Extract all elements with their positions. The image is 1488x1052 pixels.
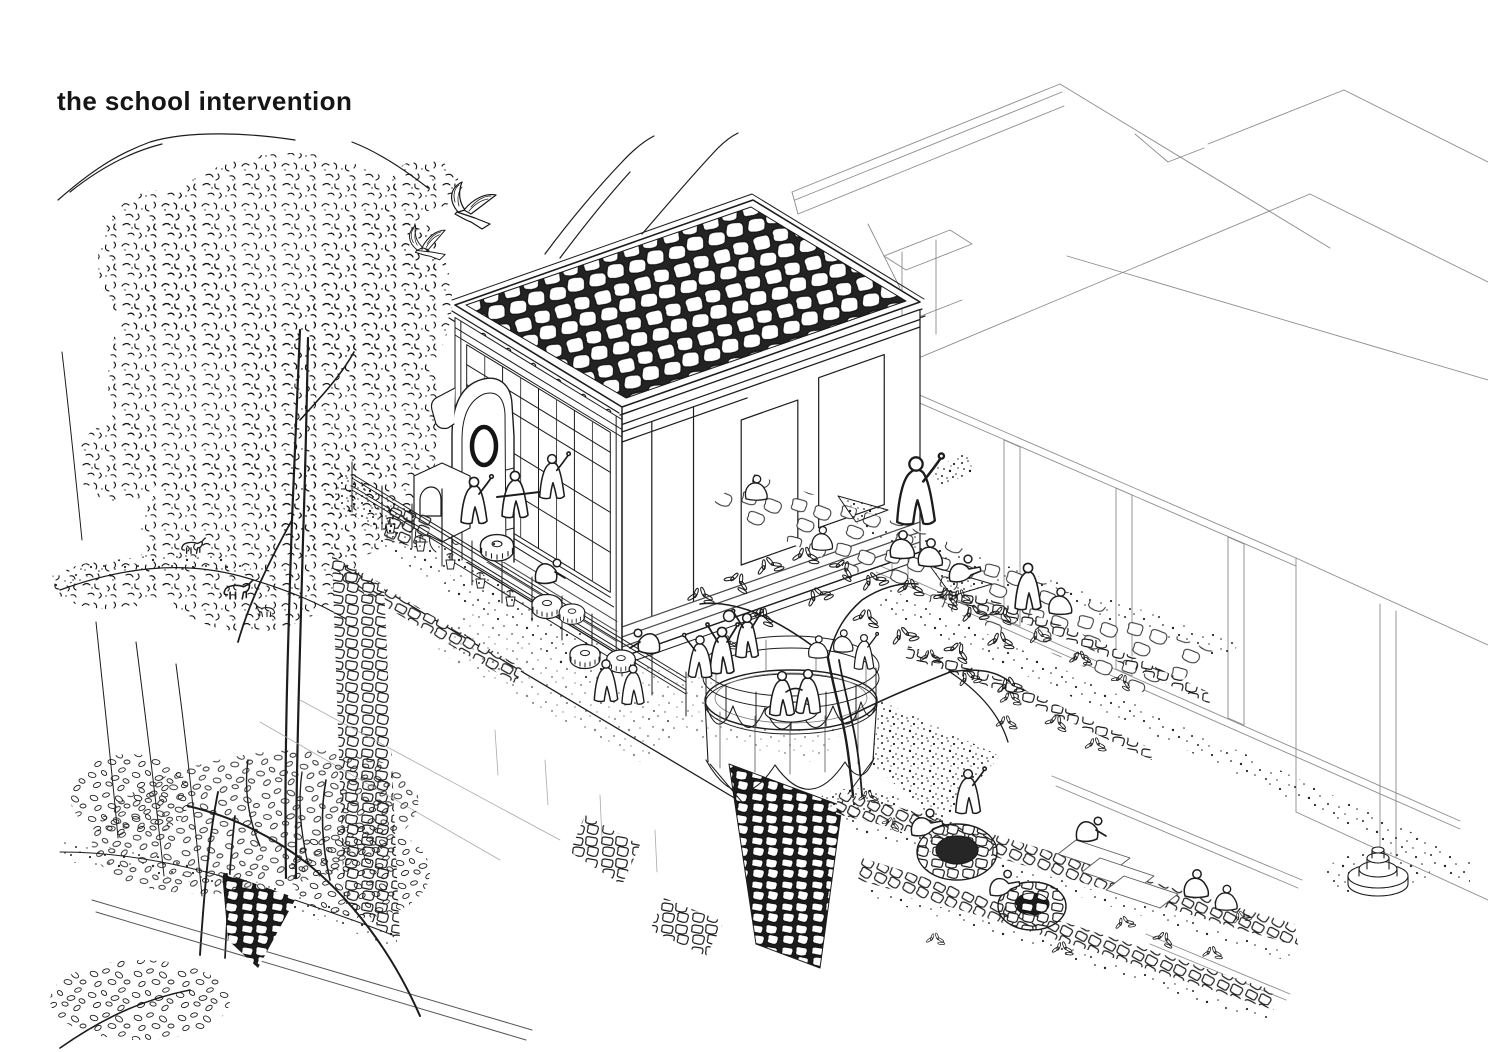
bird-icon	[452, 182, 496, 229]
person-waving	[683, 633, 712, 677]
terrace-wall-upper	[836, 792, 1298, 946]
large-tree-foliage	[54, 153, 459, 632]
child-in-tree	[854, 633, 878, 670]
person-bending	[1076, 817, 1106, 841]
illustration-svg	[0, 0, 1488, 1052]
child-in-tree	[809, 636, 828, 658]
ball	[724, 611, 735, 622]
person-sitting	[1184, 870, 1208, 898]
person-sitting	[1215, 885, 1237, 910]
illustration-canvas: the school intervention	[0, 0, 1488, 1052]
lower-tree	[50, 729, 430, 1048]
